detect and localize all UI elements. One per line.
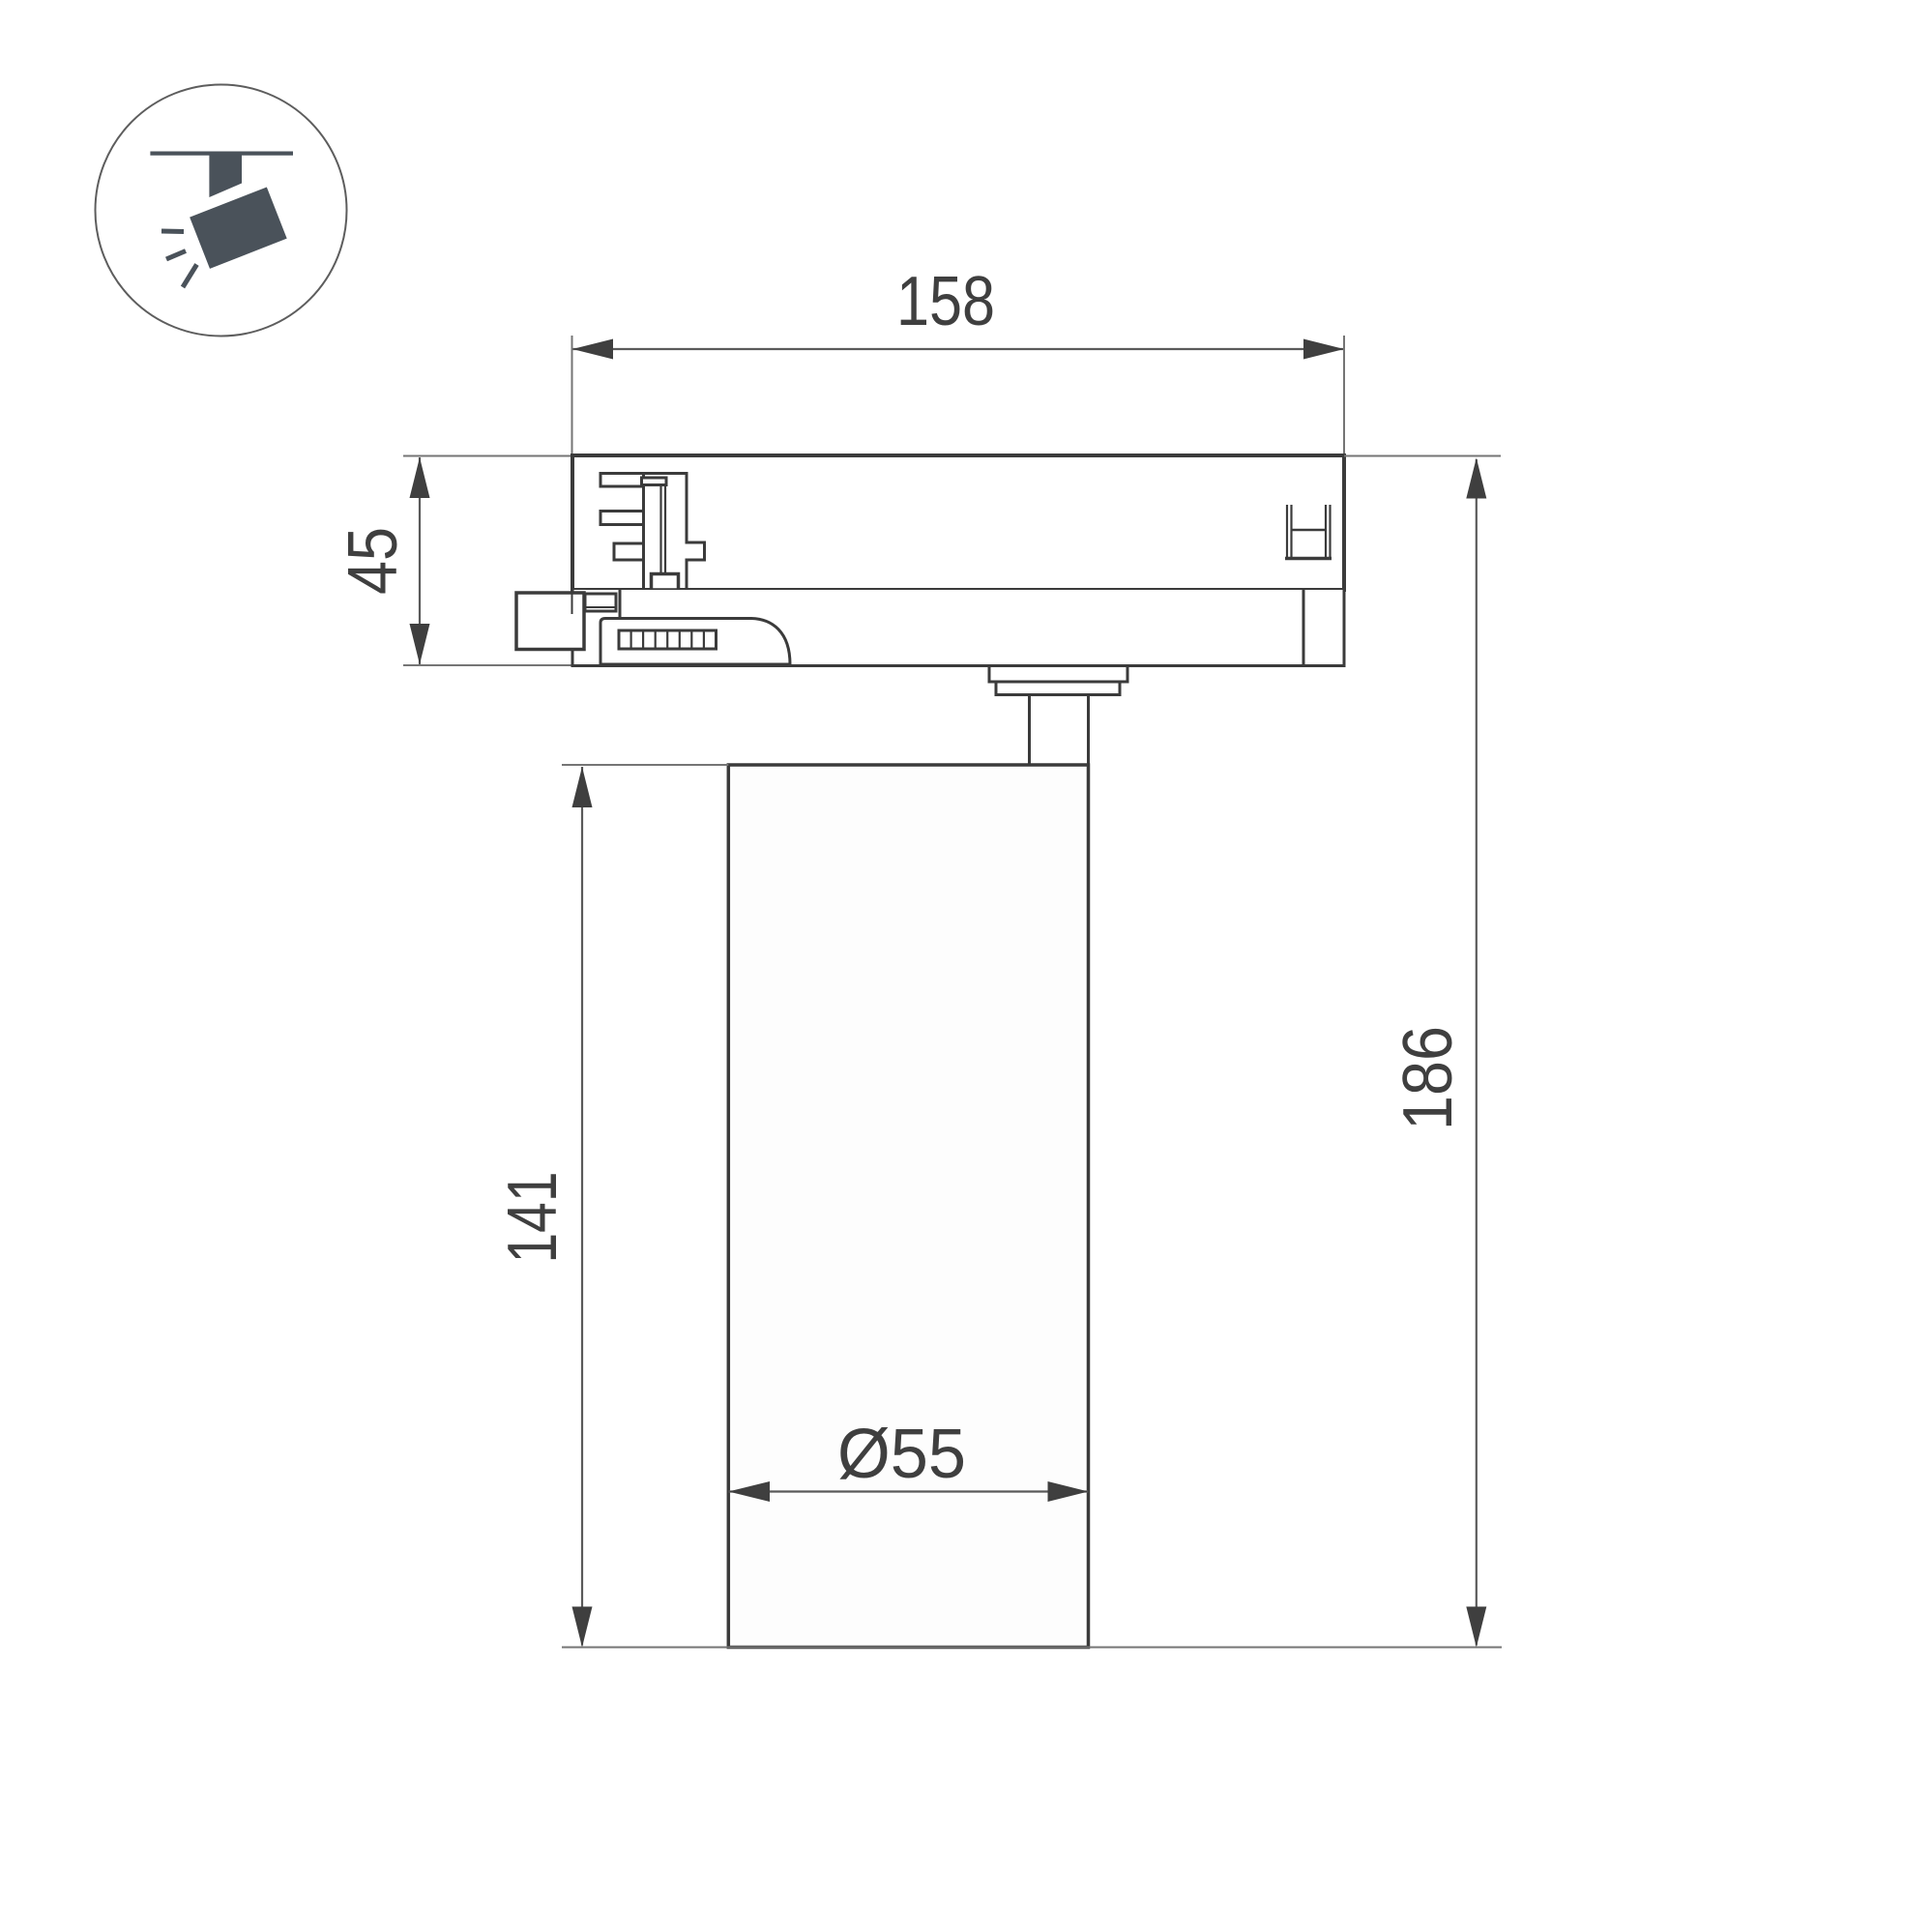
svg-text:158: 158 xyxy=(896,263,995,340)
svg-text:186: 186 xyxy=(1390,1026,1467,1130)
svg-text:Ø55: Ø55 xyxy=(837,1416,966,1493)
svg-text:141: 141 xyxy=(494,1172,571,1264)
svg-text:45: 45 xyxy=(335,527,412,595)
